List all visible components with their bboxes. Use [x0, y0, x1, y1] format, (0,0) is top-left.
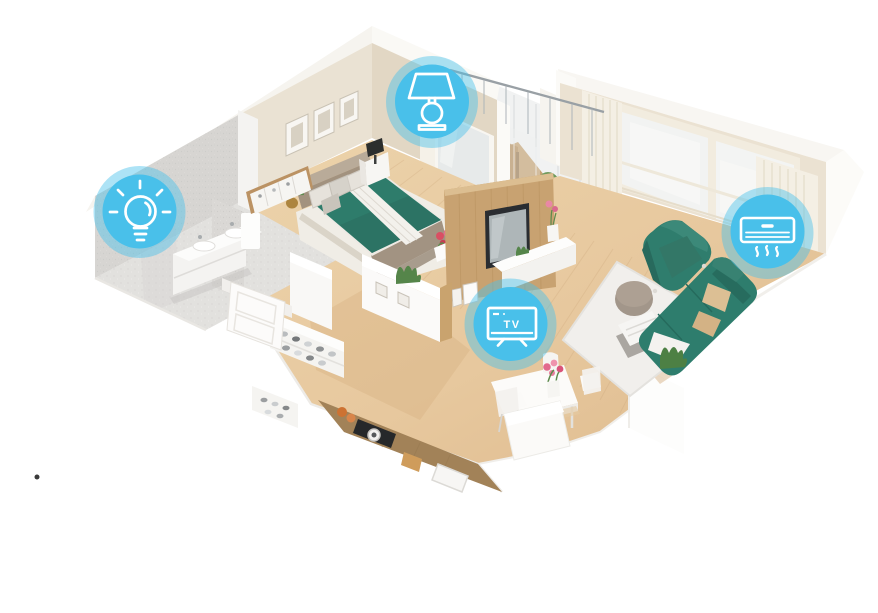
svg-text:TV: TV: [503, 319, 520, 331]
